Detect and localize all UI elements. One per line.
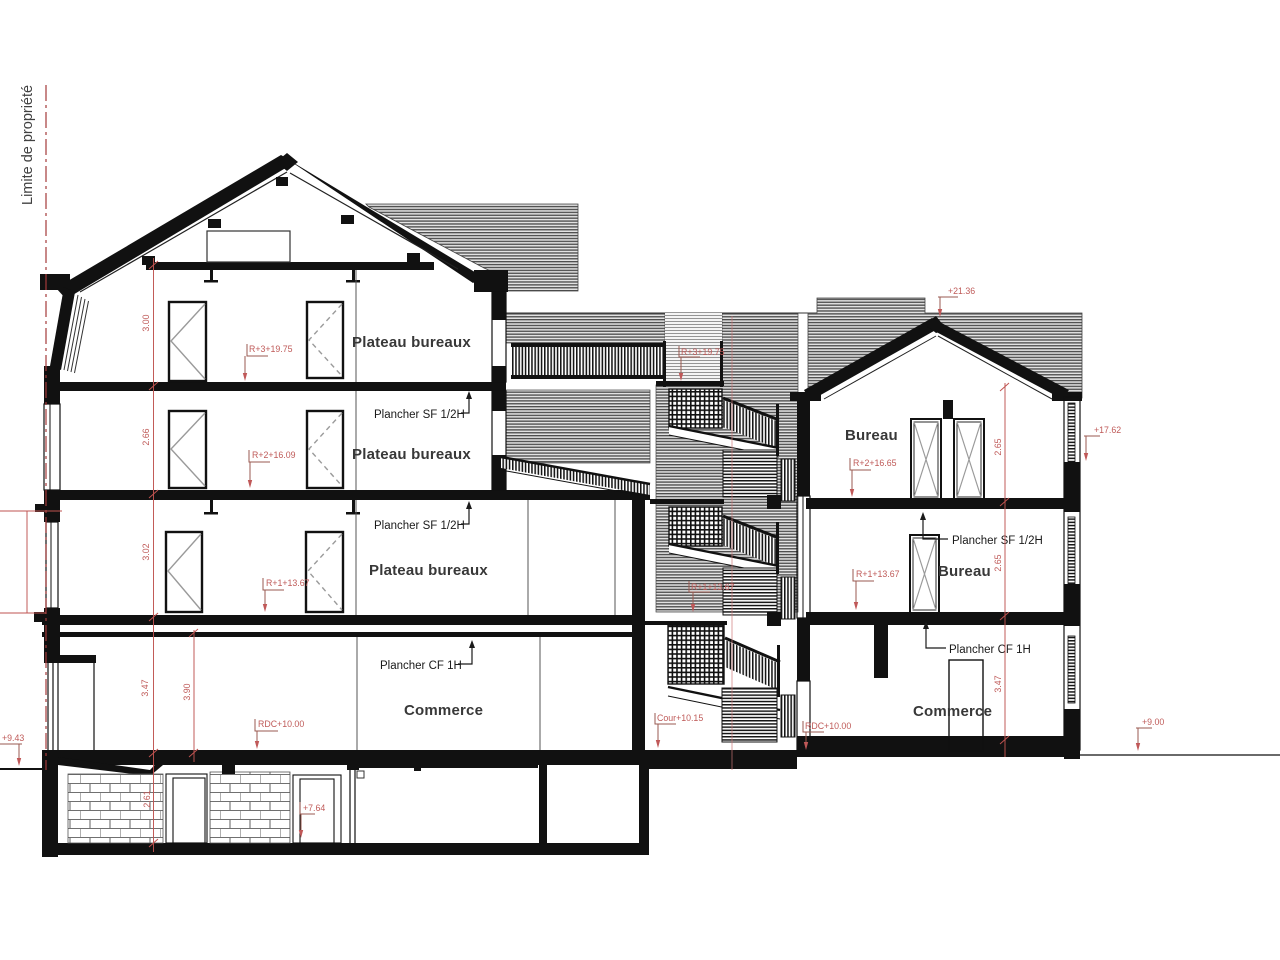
svg-text:3.00: 3.00 xyxy=(141,314,151,331)
svg-text:Plateau bureaux: Plateau bureaux xyxy=(352,446,471,463)
svg-text:Bureau: Bureau xyxy=(938,563,991,580)
svg-text:Plancher SF 1/2H: Plancher SF 1/2H xyxy=(374,409,465,421)
svg-text:3.47: 3.47 xyxy=(140,679,150,696)
svg-text:2.66: 2.66 xyxy=(141,428,151,445)
svg-text:Commerce: Commerce xyxy=(404,702,483,719)
svg-text:Plancher CF 1H: Plancher CF 1H xyxy=(380,660,462,672)
svg-text:R+1+13.67: R+1+13.67 xyxy=(266,578,310,588)
svg-text:3.02: 3.02 xyxy=(141,543,151,560)
svg-text:+21.36: +21.36 xyxy=(948,286,975,296)
svg-text:Commerce: Commerce xyxy=(913,703,992,720)
svg-text:3.47: 3.47 xyxy=(993,675,1003,692)
svg-text:R+1+13.67: R+1+13.67 xyxy=(691,582,735,592)
svg-text:2.65: 2.65 xyxy=(993,554,1003,571)
svg-text:R+3+19.75: R+3+19.75 xyxy=(681,347,725,357)
svg-text:R+1+13.67: R+1+13.67 xyxy=(856,569,900,579)
svg-text:Cour+10.15: Cour+10.15 xyxy=(657,713,703,723)
svg-text:R+2+16.09: R+2+16.09 xyxy=(252,450,296,460)
svg-text:Plancher CF 1H: Plancher CF 1H xyxy=(949,644,1031,656)
svg-text:Plancher SF 1/2H: Plancher SF 1/2H xyxy=(374,520,465,532)
svg-text:R+3+19.75: R+3+19.75 xyxy=(249,344,293,354)
svg-text:RDC+10.00: RDC+10.00 xyxy=(258,719,304,729)
svg-text:+7.64: +7.64 xyxy=(303,803,325,813)
svg-text:+9.43: +9.43 xyxy=(2,733,24,743)
svg-text:+9.00: +9.00 xyxy=(1142,717,1164,727)
svg-text:R+2+16.65: R+2+16.65 xyxy=(853,458,897,468)
svg-text:3.90: 3.90 xyxy=(182,683,192,700)
svg-text:+17.62: +17.62 xyxy=(1094,425,1121,435)
svg-text:2.61: 2.61 xyxy=(142,790,152,807)
svg-text:Plancher SF 1/2H: Plancher SF 1/2H xyxy=(952,535,1043,547)
svg-text:Limite de propriété: Limite de propriété xyxy=(20,85,36,205)
svg-text:Bureau: Bureau xyxy=(845,427,898,444)
svg-text:2.65: 2.65 xyxy=(993,438,1003,455)
svg-text:Plateau bureaux: Plateau bureaux xyxy=(369,562,488,579)
svg-text:Plateau bureaux: Plateau bureaux xyxy=(352,334,471,351)
svg-text:RDC+10.00: RDC+10.00 xyxy=(805,721,851,731)
